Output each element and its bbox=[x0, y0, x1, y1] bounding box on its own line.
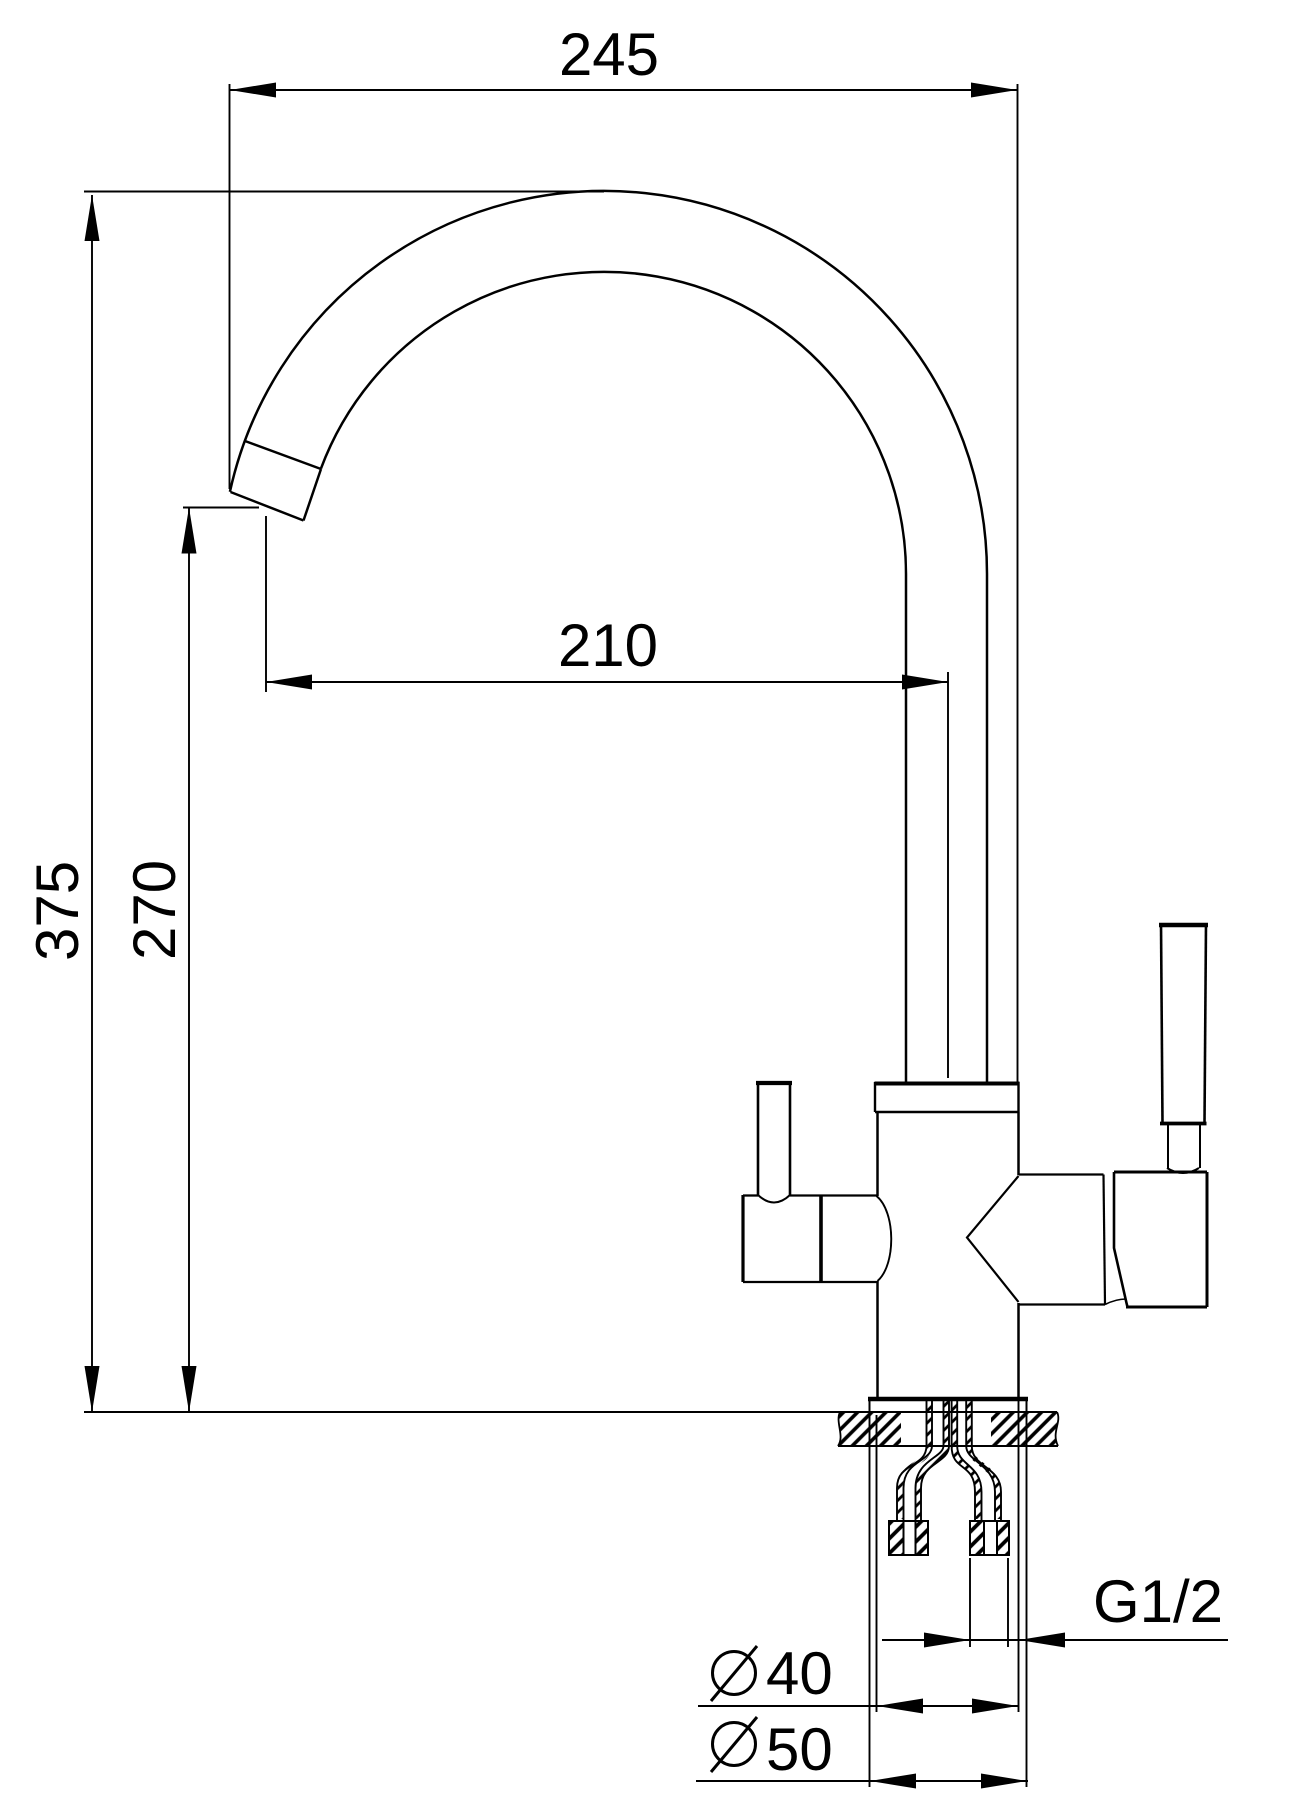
svg-text:50: 50 bbox=[766, 1716, 833, 1783]
svg-text:40: 40 bbox=[766, 1640, 833, 1707]
svg-text:375: 375 bbox=[24, 861, 91, 961]
svg-text:210: 210 bbox=[558, 612, 658, 679]
svg-text:270: 270 bbox=[121, 860, 188, 960]
svg-text:G1/2: G1/2 bbox=[1093, 1568, 1223, 1635]
svg-text:245: 245 bbox=[559, 21, 659, 88]
